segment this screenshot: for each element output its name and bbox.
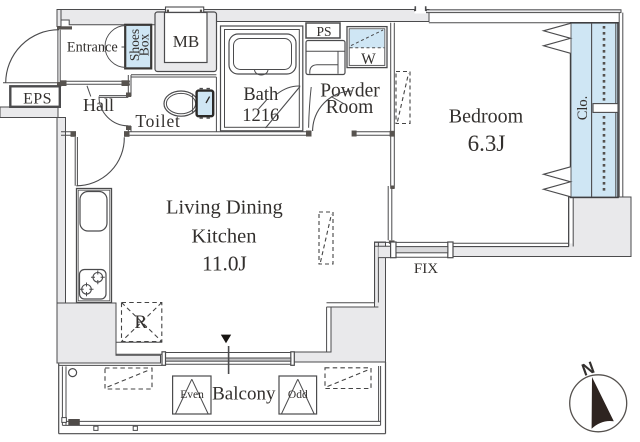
svg-text:Box: Box: [137, 34, 152, 57]
svg-text:R: R: [134, 312, 147, 333]
svg-text:Hall: Hall: [83, 95, 114, 115]
svg-text:Odd: Odd: [288, 389, 308, 401]
svg-text:Bedroom: Bedroom: [449, 105, 524, 127]
svg-text:Room: Room: [326, 97, 374, 118]
svg-text:Entrance: Entrance: [67, 40, 118, 56]
svg-text:11.0J: 11.0J: [202, 252, 247, 276]
svg-text:1216: 1216: [242, 106, 279, 126]
svg-text:W: W: [361, 51, 376, 68]
svg-text:Balcony: Balcony: [212, 384, 276, 405]
svg-text:Kitchen: Kitchen: [192, 226, 257, 248]
svg-text:FIX: FIX: [414, 261, 438, 277]
svg-text:Even: Even: [180, 389, 204, 401]
svg-text:Bath: Bath: [243, 85, 278, 105]
svg-text:6.3J: 6.3J: [468, 131, 506, 156]
svg-text:Living Dining: Living Dining: [166, 196, 283, 218]
svg-text:EPS: EPS: [23, 90, 52, 107]
svg-text:PS: PS: [316, 24, 331, 39]
svg-text:Clo.: Clo.: [575, 96, 591, 121]
svg-text:MB: MB: [173, 32, 199, 51]
